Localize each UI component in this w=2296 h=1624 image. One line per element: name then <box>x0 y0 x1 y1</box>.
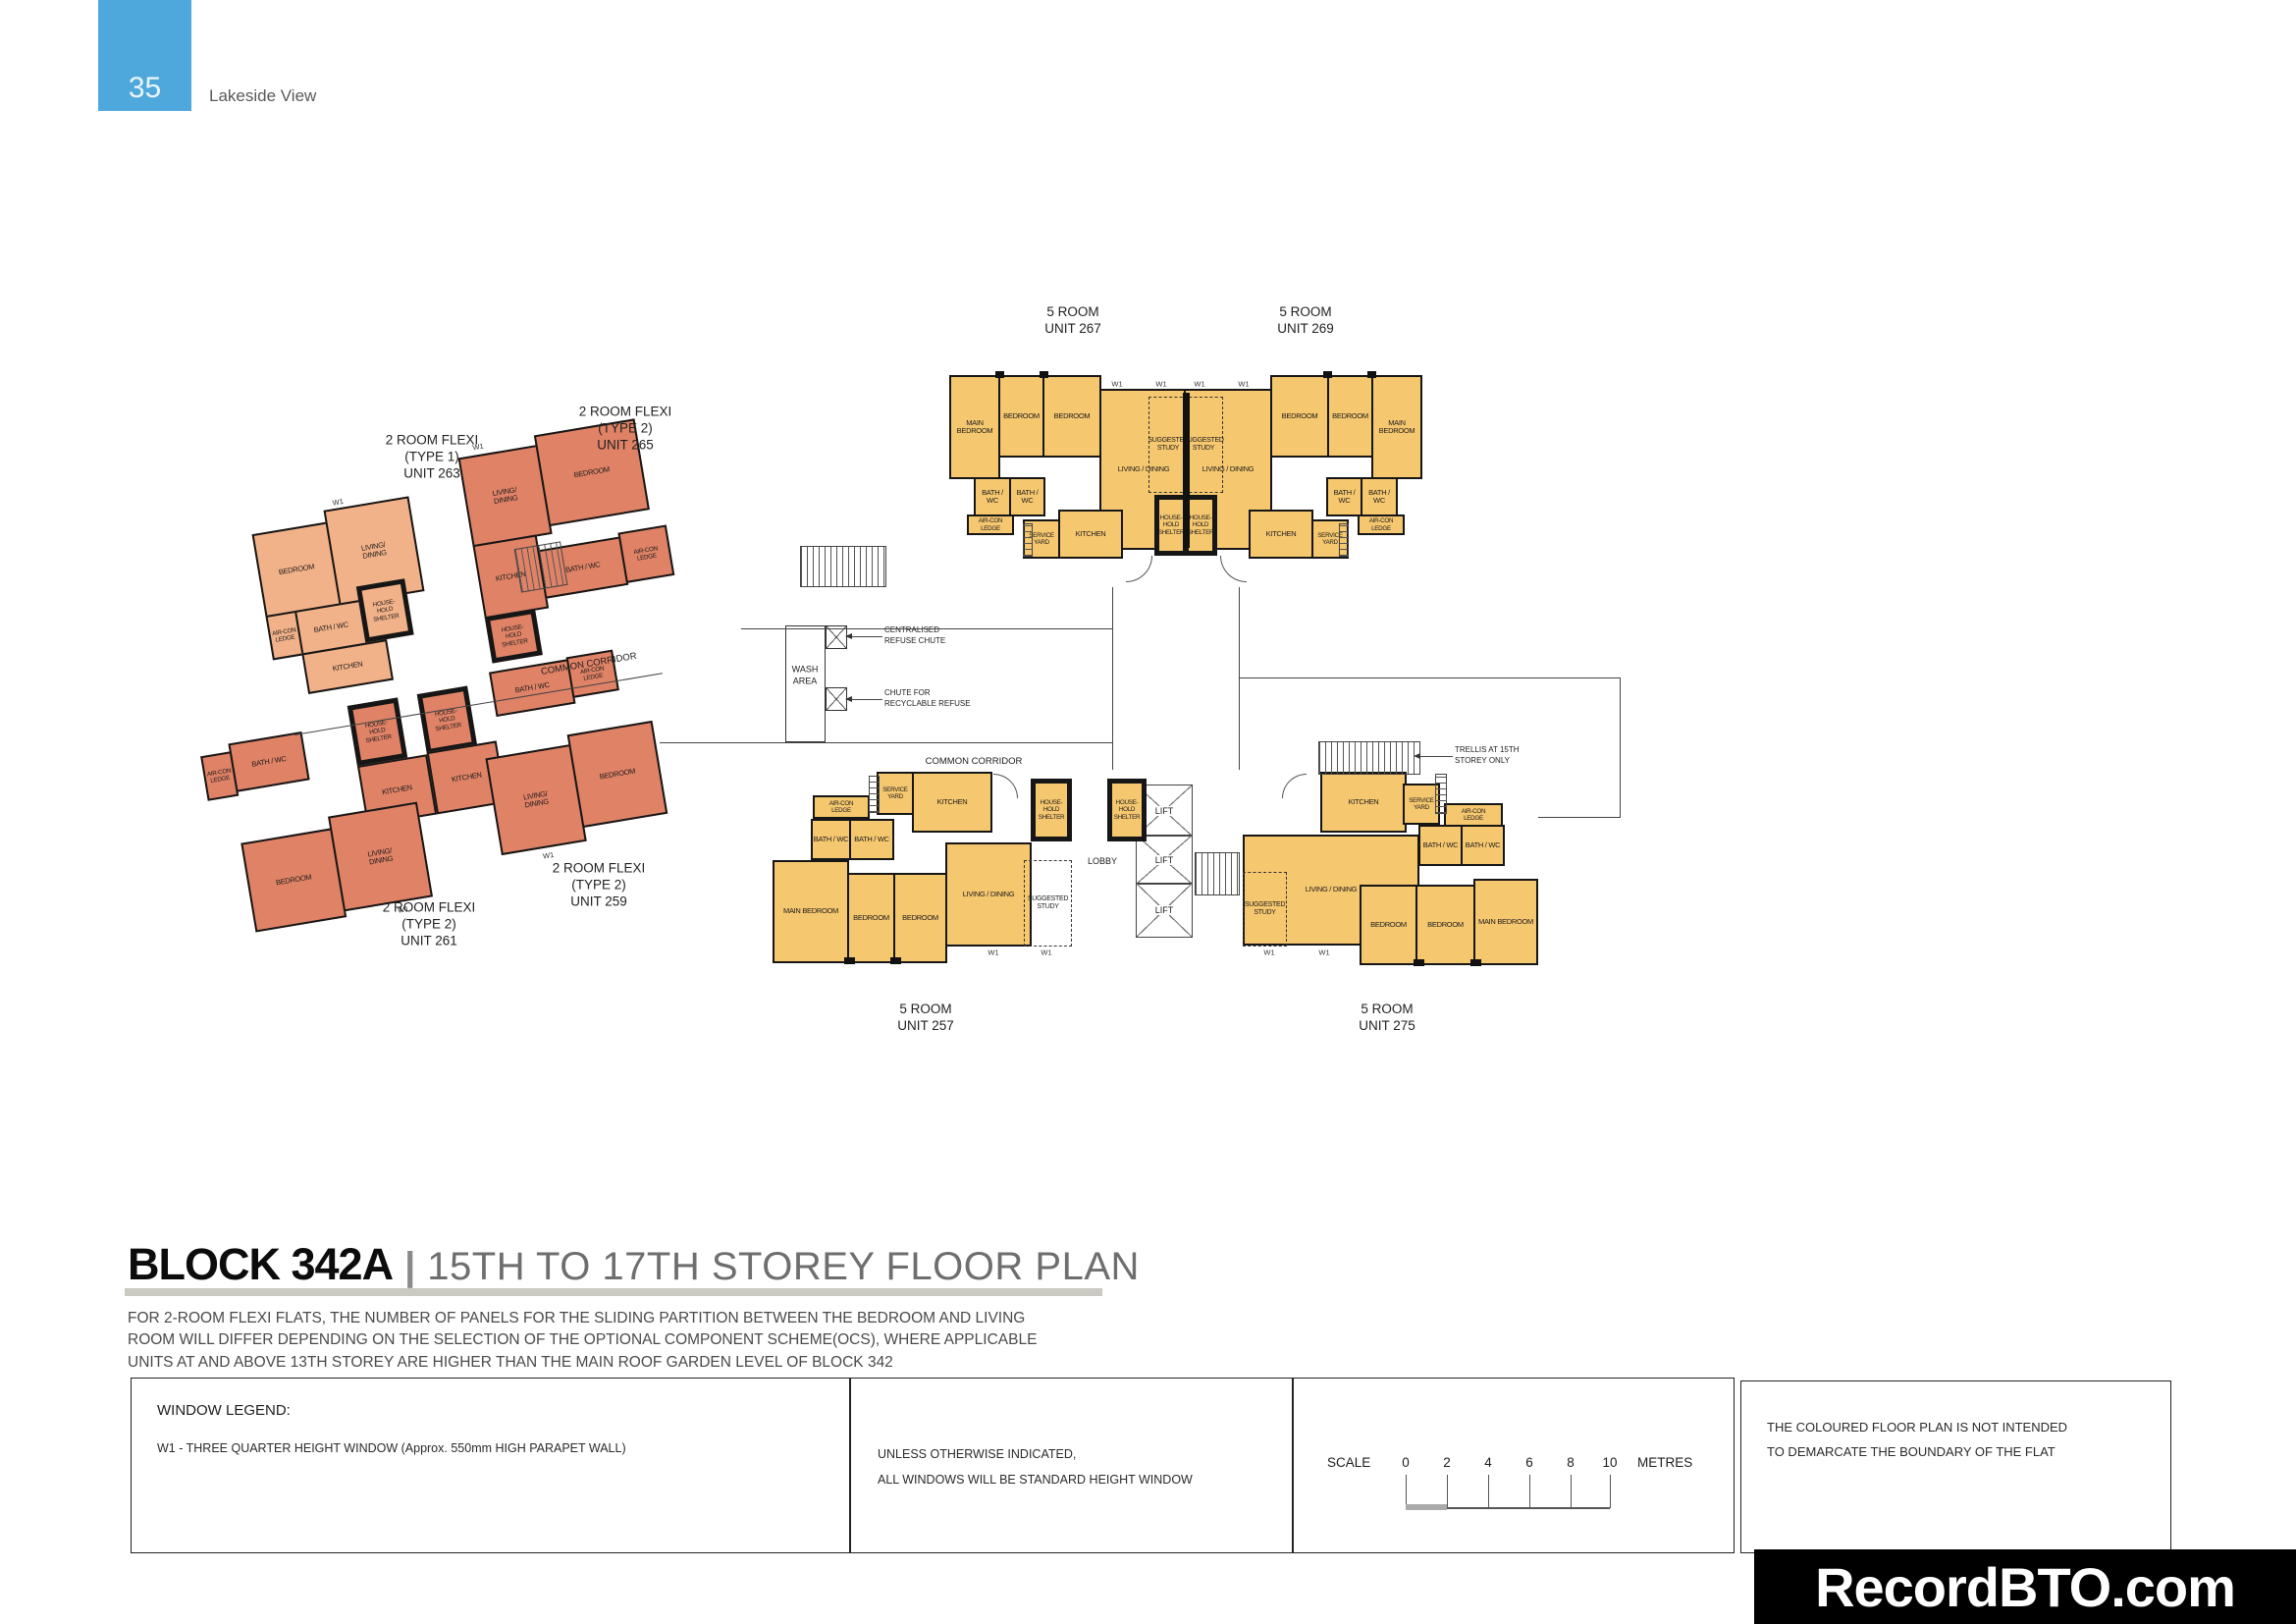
w1-marker: W1 <box>988 948 998 957</box>
watermark-banner[interactable]: RecordBTO.com <box>1754 1549 2296 1624</box>
leader-line <box>1419 756 1453 757</box>
room-u269-bath-b: BATH / WC <box>1326 477 1362 516</box>
room-u257-bath-b: BATH / WC <box>849 819 894 860</box>
room-u259-bedroom: BEDROOM <box>567 721 668 828</box>
scale-tick-2: 2 <box>1443 1455 1451 1470</box>
lobby-label: LOBBY <box>1088 856 1117 868</box>
corridor-line <box>1538 817 1621 818</box>
corridor-line <box>1112 587 1113 770</box>
room-u267-bedroom-b: BEDROOM <box>1042 375 1101 458</box>
corridor-line <box>741 628 1112 629</box>
room-u275-suggested-study: SUGGESTED STUDY <box>1243 872 1287 947</box>
corridor-line <box>1620 677 1621 818</box>
scale-tickmark <box>1571 1475 1572 1508</box>
unit-label-267: 5 ROOM UNIT 267 <box>1044 304 1101 338</box>
staircase-hatch <box>800 546 886 587</box>
block-title: BLOCK 342A <box>128 1239 393 1290</box>
unit-label-275: 5 ROOM UNIT 275 <box>1359 1001 1415 1035</box>
wall-pier <box>1367 371 1376 378</box>
room-u257-main-bedroom: MAIN BEDROOM <box>773 860 849 963</box>
scale-bar-fill <box>1406 1504 1447 1510</box>
leader-line <box>852 636 882 637</box>
room-u275-household-shelter: HOUSE- HOLD SHELTER <box>1107 779 1147 841</box>
staircase-hatch <box>514 541 568 592</box>
watermark-text[interactable]: RecordBTO.com <box>1815 1555 2235 1619</box>
leader-line <box>852 699 882 700</box>
wall-pier <box>1470 959 1481 966</box>
room-u275-kitchen: KITCHEN <box>1320 772 1407 833</box>
room-u261-household-shelter: HOUSE- HOLD SHELTER <box>347 697 408 766</box>
unit-label-263: 2 ROOM FLEXI (TYPE 1) UNIT 263 <box>386 433 479 483</box>
unit-label-269: 5 ROOM UNIT 269 <box>1277 304 1334 338</box>
corridor-line <box>660 742 1112 743</box>
scale-tickmark <box>1406 1475 1407 1508</box>
scale-tick-10: 10 <box>1602 1455 1617 1470</box>
door-arc <box>993 774 1018 798</box>
room-u263-household-shelter: HOUSE- HOLD SHELTER <box>356 578 414 642</box>
window-hatch <box>869 776 880 813</box>
window-hatch <box>1023 523 1033 557</box>
lift-3: LIFT <box>1136 883 1193 938</box>
room-u257-household-shelter: HOUSE- HOLD SHELTER <box>1031 779 1072 841</box>
staircase-hatch <box>1195 852 1240 895</box>
door-arc <box>1220 556 1247 582</box>
wall-pier <box>1183 393 1190 548</box>
wash-area-label: WASH AREA <box>792 664 819 686</box>
room-u261-living: LIVING/ DINING <box>328 802 433 912</box>
room-u267-main-bedroom: MAIN BEDROOM <box>949 375 1000 479</box>
room-u267-suggested-study: SUGGESTED STUDY <box>1148 397 1188 493</box>
w1-marker: W1 <box>1155 380 1166 389</box>
scale-label: SCALE <box>1327 1455 1370 1470</box>
room-u275-main-bedroom: MAIN BEDROOM <box>1473 879 1538 965</box>
legend-divider <box>849 1378 851 1553</box>
room-u257-aircon-ledge: AIR-CON LEDGE <box>813 795 870 819</box>
w1-marker: W1 <box>332 497 345 508</box>
scale-tick-4: 4 <box>1484 1455 1492 1470</box>
window-legend-w1: W1 - THREE QUARTER HEIGHT WINDOW (Approx… <box>157 1435 626 1461</box>
room-u261-bath: BATH / WC <box>228 731 309 792</box>
scale-tickmark <box>1488 1475 1489 1508</box>
room-u269-bedroom-b: BEDROOM <box>1270 375 1329 458</box>
w1-marker: W1 <box>1238 380 1249 389</box>
window-hatch <box>1435 774 1447 814</box>
title-divider: | <box>404 1245 415 1289</box>
recyclable-refuse-chute-label: CHUTE FOR RECYCLABLE REFUSE <box>884 688 971 710</box>
storey-title: 15TH TO 17TH STOREY FLOOR PLAN <box>427 1245 1140 1289</box>
wall-pier <box>995 371 1004 378</box>
room-u257-service-yard: SERVICE YARD <box>877 772 914 815</box>
room-u269-bedroom-a: BEDROOM <box>1327 375 1373 458</box>
w1-marker: W1 <box>1111 380 1122 389</box>
room-u267-kitchen: KITCHEN <box>1058 510 1123 559</box>
boundary-note: THE COLOURED FLOOR PLAN IS NOT INTENDED … <box>1767 1416 2067 1464</box>
window-legend-title: WINDOW LEGEND: <box>157 1402 291 1419</box>
wall-pier <box>1040 371 1048 378</box>
wall-pier <box>1414 959 1424 966</box>
unit-label-257: 5 ROOM UNIT 257 <box>897 1001 954 1035</box>
leader-arrow <box>845 696 852 702</box>
recyclable-chute-box <box>826 687 847 711</box>
room-u269-aircon-ledge: AIR-CON LEDGE <box>1358 514 1405 535</box>
unit-label-265: 2 ROOM FLEXI (TYPE 2) UNIT 265 <box>579 405 672 455</box>
scale-tickmark <box>1610 1475 1611 1508</box>
door-arc <box>1282 774 1307 798</box>
scale-tick-6: 6 <box>1525 1455 1533 1470</box>
floor-plan-canvas: 5 ROOM UNIT 267 5 ROOM UNIT 269 MAIN BED… <box>0 0 2296 1178</box>
room-u265-aircon-ledge: AIR-CON LEDGE <box>617 524 674 583</box>
room-u275-bath-b: BATH / WC <box>1461 825 1505 866</box>
w1-marker: W1 <box>1263 948 1274 957</box>
legend-divider <box>1292 1378 1294 1553</box>
door-arc <box>1126 556 1152 582</box>
scale-tick-8: 8 <box>1567 1455 1575 1470</box>
w1-marker: W1 <box>1194 380 1204 389</box>
wall-pier <box>844 957 855 964</box>
trellis-note-label: TRELLIS AT 15TH STOREY ONLY <box>1455 745 1520 767</box>
room-u257-bath-a: BATH / WC <box>811 819 851 860</box>
scale-tickmark <box>1447 1475 1448 1508</box>
common-corridor-label: COMMON CORRIDOR <box>926 756 1023 768</box>
room-u267-bedroom-a: BEDROOM <box>998 375 1044 458</box>
leader-arrow <box>1414 753 1420 759</box>
plan-title: BLOCK 342A | 15TH TO 17TH STOREY FLOOR P… <box>128 1239 1140 1290</box>
lift-2: LIFT <box>1136 835 1193 885</box>
room-u257-kitchen: KITCHEN <box>912 772 992 833</box>
room-u269-kitchen: KITCHEN <box>1249 510 1313 559</box>
boundary-note-box <box>1740 1380 2171 1553</box>
scale-tick-0: 0 <box>1402 1455 1410 1470</box>
room-u275-aircon-ledge: AIR-CON LEDGE <box>1444 803 1503 827</box>
scale-unit: METRES <box>1637 1455 1692 1470</box>
wall-pier <box>1323 371 1332 378</box>
scale-tickmark <box>1529 1475 1530 1508</box>
room-u267-bath-a: BATH / WC <box>974 477 1011 516</box>
room-u265-household-shelter: HOUSE- HOLD SHELTER <box>485 609 543 664</box>
plan-notes: FOR 2-ROOM FLEXI FLATS, THE NUMBER OF PA… <box>128 1308 1037 1374</box>
window-note: UNLESS OTHERWISE INDICATED, ALL WINDOWS … <box>878 1441 1193 1493</box>
wall-pier <box>890 957 901 964</box>
room-u261-bedroom: BEDROOM <box>240 828 347 932</box>
corridor-line <box>1239 677 1620 678</box>
w1-marker: W1 <box>542 850 555 861</box>
room-u275-bath-a: BATH / WC <box>1418 825 1463 866</box>
room-u275-bedroom-a: BEDROOM <box>1360 885 1417 965</box>
room-u267-aircon-ledge: AIR-CON LEDGE <box>967 514 1014 535</box>
room-u257-bedroom-b: BEDROOM <box>893 873 947 963</box>
trellis-hatch <box>1318 741 1420 775</box>
unit-label-259: 2 ROOM FLEXI (TYPE 2) UNIT 259 <box>553 861 646 911</box>
room-u257-bedroom-a: BEDROOM <box>847 873 895 963</box>
room-u257-suggested-study: SUGGESTED STUDY <box>1024 860 1072 947</box>
room-u259-household-shelter: HOUSE- HOLD SHELTER <box>417 686 478 755</box>
room-u269-main-bedroom: MAIN BEDROOM <box>1371 375 1422 479</box>
w1-marker: W1 <box>1318 948 1329 957</box>
window-hatch <box>1339 523 1349 557</box>
floor-plan-page: 35 Lakeside View 5 ROOM UNIT 267 5 ROOM … <box>0 0 2296 1624</box>
room-u257-living: LIVING / DINING <box>945 842 1032 947</box>
leader-arrow <box>845 633 852 639</box>
room-u275-bedroom-b: BEDROOM <box>1415 885 1475 965</box>
room-u269-bath-a: BATH / WC <box>1361 477 1398 516</box>
w1-marker: W1 <box>1041 948 1051 957</box>
title-underline <box>125 1288 1102 1296</box>
room-u269-suggested-study: SUGGESTED STUDY <box>1184 397 1223 493</box>
room-u267-bath-b: BATH / WC <box>1009 477 1045 516</box>
unit-label-261: 2 ROOM FLEXI (TYPE 2) UNIT 261 <box>383 900 476 950</box>
